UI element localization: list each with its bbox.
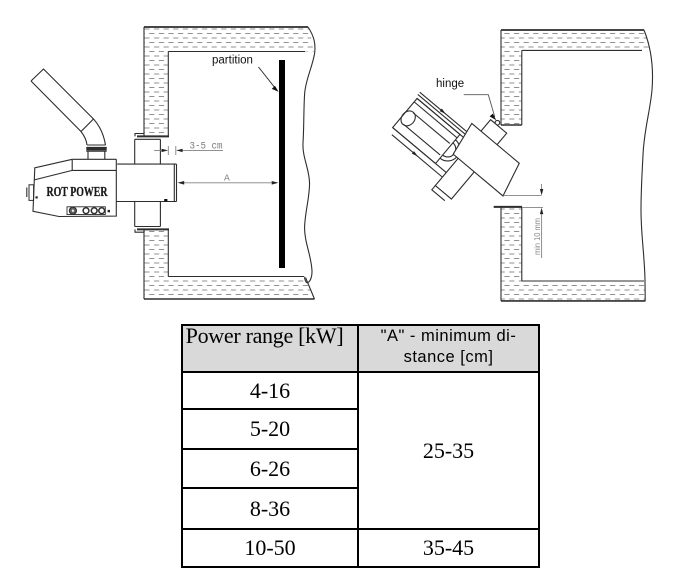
- svg-text:A: A: [224, 173, 230, 184]
- svg-text:3-5 cm: 3-5 cm: [190, 142, 223, 153]
- svg-text:hinge: hinge: [436, 78, 464, 90]
- svg-text:min 10 mm: min 10 mm: [532, 218, 542, 255]
- svg-text:ROT POWER: ROT POWER: [47, 185, 109, 200]
- svg-text:partition: partition: [212, 55, 253, 67]
